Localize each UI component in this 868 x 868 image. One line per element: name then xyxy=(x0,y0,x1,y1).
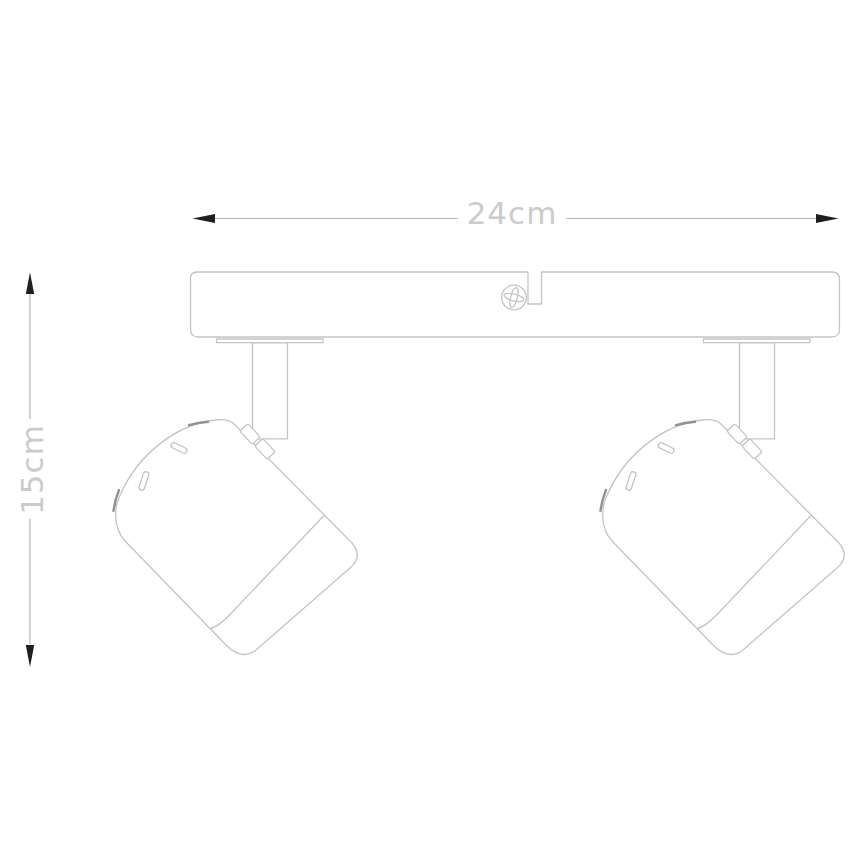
phillips-screw-icon xyxy=(502,285,527,310)
arrow-down-icon xyxy=(26,645,34,667)
arrow-left-icon xyxy=(193,214,216,223)
drawing-canvas xyxy=(0,0,868,868)
arrow-right-icon xyxy=(816,214,839,223)
spot-unit-left xyxy=(114,339,358,654)
spot-unit-right xyxy=(601,339,845,654)
arrow-up-icon xyxy=(26,273,34,295)
spotlight-technical-drawing: 24cm 15cm xyxy=(0,0,868,868)
height-dimension-label: 15cm xyxy=(16,424,49,516)
width-dimension-label: 24cm xyxy=(450,196,574,230)
